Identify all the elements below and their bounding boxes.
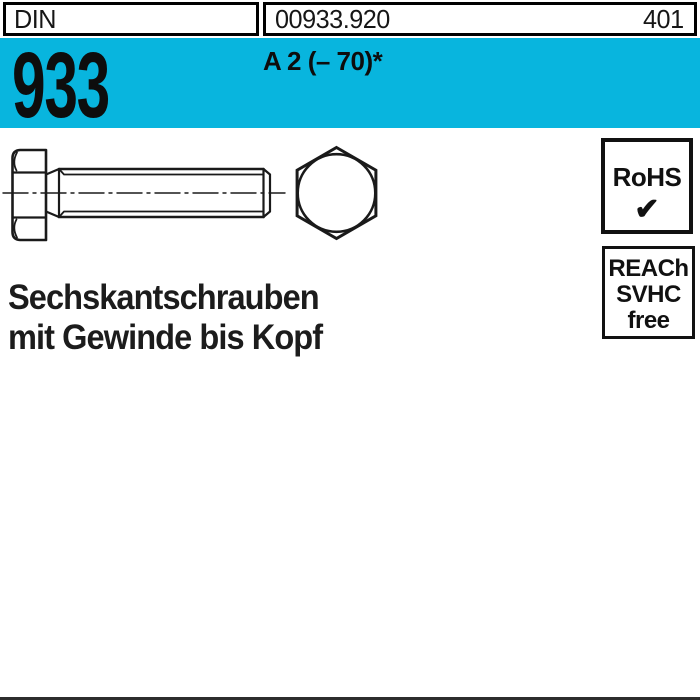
bolt-head-outline — [13, 150, 47, 240]
rohs-badge: RoHS ✔ — [601, 138, 693, 234]
din-label-box: DIN — [3, 2, 259, 36]
standard-banner: 933 A 2 (– 70)* — [0, 38, 700, 128]
product-title-line1: Sechskantschrauben — [8, 278, 322, 318]
page-number: 401 — [643, 6, 684, 32]
article-number: 00933.920 — [275, 6, 390, 32]
product-title-line2: mit Gewinde bis Kopf — [8, 318, 322, 358]
bolt-front-view — [297, 148, 376, 239]
reach-line1: REACh — [605, 256, 692, 282]
hex-head-outline — [297, 148, 376, 239]
standard-number: 933 — [12, 44, 109, 128]
material-grade: A 2 (– 70)* — [263, 46, 382, 77]
product-title: Sechskantschrauben mit Gewinde bis Kopf — [8, 278, 322, 358]
reach-badge: REACh SVHC free — [602, 246, 695, 339]
bolt-technical-drawing — [0, 140, 390, 255]
catalog-page: DIN 00933.920 401 933 A 2 (– 70)* — [0, 0, 700, 700]
rohs-label: RoHS — [605, 162, 689, 193]
bolt-head-facet-lines — [13, 173, 47, 218]
reach-line2: SVHC — [605, 282, 692, 308]
rohs-check-icon: ✔ — [605, 193, 689, 226]
hex-head-chamfer-circle — [298, 154, 376, 232]
bolt-side-view — [3, 150, 285, 240]
din-label: DIN — [14, 6, 56, 32]
bolt-head-chamfer-arcs — [14, 153, 17, 238]
reach-line3: free — [605, 308, 692, 334]
article-number-box: 00933.920 401 — [263, 2, 697, 36]
